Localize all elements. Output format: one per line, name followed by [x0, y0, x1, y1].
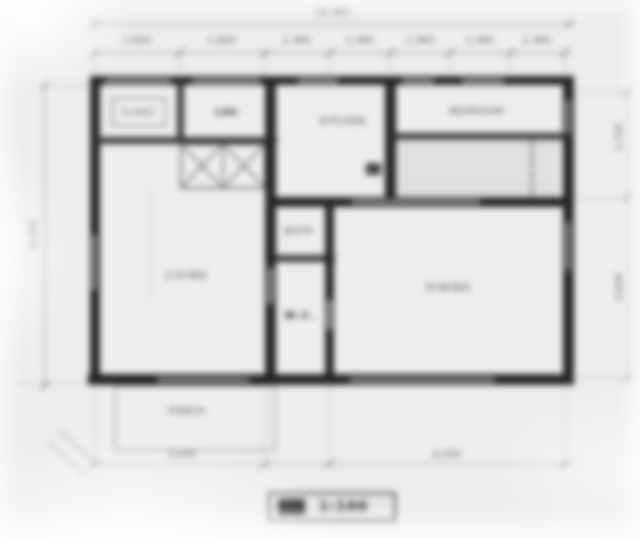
door-core-right — [327, 300, 332, 330]
window-top-3 — [298, 79, 338, 83]
dim-top-seg-7: 1,365 — [523, 36, 551, 46]
wall-main-vertical — [265, 82, 276, 377]
wall-hatch-top — [385, 133, 563, 140]
window-top-2 — [192, 79, 260, 83]
room-label-closet-box: CLOSET — [112, 98, 166, 126]
floor-plan-photo: CLOSET LAV. KITCHEN BEDROOM LIVING BATH … — [0, 0, 640, 538]
scale-stamp: S= 1:100 — [268, 492, 396, 522]
window-bottom-1 — [157, 378, 249, 382]
dim-top-seg-3: 1,365 — [283, 36, 311, 46]
dim-top-seg-5: 1,365 — [406, 36, 434, 46]
scale-stamp-prefix: S= — [278, 499, 305, 515]
window-top-4 — [402, 79, 434, 83]
window-left-1 — [92, 235, 96, 290]
floor-plan-drawing: CLOSET LAV. KITCHEN BEDROOM LIVING BATH … — [0, 0, 640, 538]
room-label-dining: DINING — [426, 283, 471, 294]
door-middle-horizontal — [352, 200, 480, 204]
window-top-1 — [105, 79, 171, 83]
window-bottom-2 — [350, 378, 495, 382]
wall-core-right — [325, 200, 334, 376]
room-label-bath: BATH — [285, 227, 313, 237]
dim-right-seg-2: 3,640 — [615, 273, 625, 301]
room-label-bedroom: BEDROOM — [450, 107, 504, 117]
scale-stamp-value: 1:100 — [319, 499, 369, 515]
wall-top-row-left — [97, 137, 277, 144]
door-main-vertical — [268, 268, 273, 304]
room-label-porch: PORCH — [169, 407, 205, 417]
wall-kitchen-right — [385, 82, 396, 200]
room-label-lavatory: LAV. — [215, 108, 240, 118]
room-label-wc: W.C. — [284, 311, 315, 322]
room-label-closet: CLOSET — [121, 108, 156, 117]
window-right-2 — [566, 222, 570, 270]
dim-bottom-seg-2: 4,550 — [433, 450, 461, 460]
room-label-living: LIVING — [166, 271, 209, 282]
window-right-1 — [566, 100, 570, 134]
wall-exterior-left — [90, 76, 100, 385]
room-label-kitchen: KITCHEN — [320, 117, 366, 127]
dim-top-seg-4: 1,365 — [346, 36, 374, 46]
dim-top-seg-6: 1,365 — [466, 36, 494, 46]
wall-top-divider-1 — [177, 82, 184, 140]
dim-left-overall: 6,370 — [29, 220, 39, 248]
dim-bottom-seg-1: 3,640 — [168, 450, 196, 460]
dim-top-seg-1: 1,820 — [123, 36, 151, 46]
dim-top-seg-2: 1,820 — [208, 36, 236, 46]
dim-top-overall: 10,465 — [316, 8, 351, 18]
dim-right-seg-1: 2,730 — [615, 123, 625, 151]
window-top-5 — [462, 79, 504, 83]
